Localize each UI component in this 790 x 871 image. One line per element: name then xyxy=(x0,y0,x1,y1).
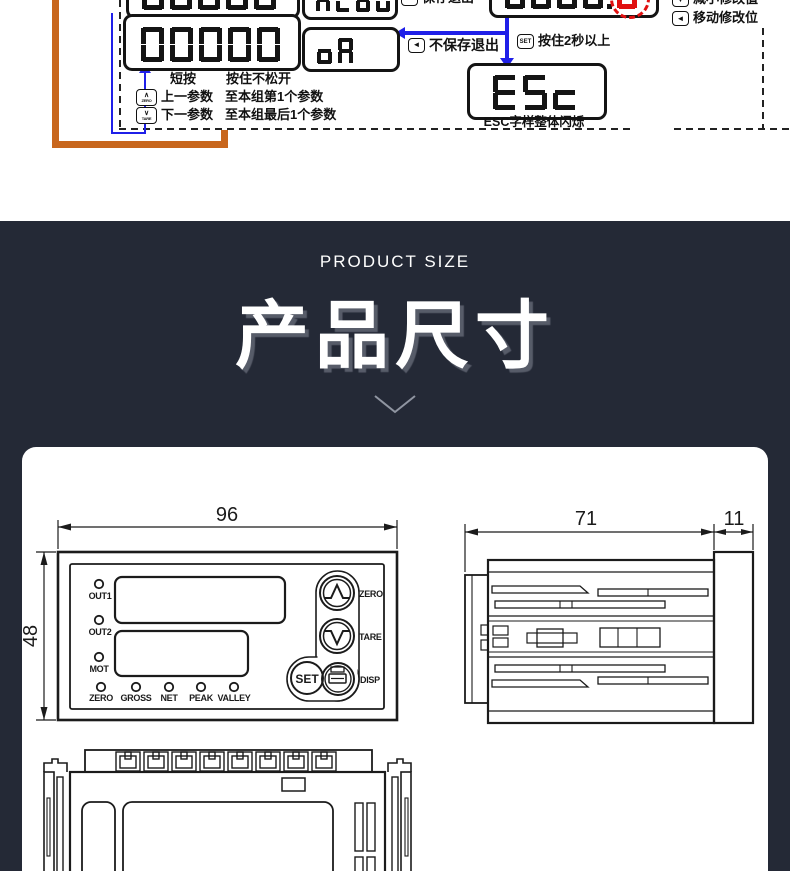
lcd-esc xyxy=(467,63,607,120)
lcd-main-value xyxy=(123,14,301,71)
led-mot-label: MOT xyxy=(89,664,109,674)
left-key-icon: ◄ xyxy=(408,38,425,53)
dimension-drawings: 96 48 OUT1 OUT2 MOT xyxy=(0,447,790,871)
dim-depth-label: 71 xyxy=(575,508,597,530)
dashed-border-left xyxy=(119,0,121,129)
led-out1-label: OUT1 xyxy=(89,591,112,601)
btn-set-label: SET xyxy=(295,672,319,686)
led-valley-label: VALLEY xyxy=(217,693,250,703)
blue-loop-left xyxy=(111,13,113,134)
btn-tare-label: TARE xyxy=(359,632,382,642)
param-digits xyxy=(314,38,356,64)
chevron-down-icon xyxy=(372,392,418,416)
prev-param-row: ∧ ZERO 上一参数 至本组第1个参数 xyxy=(136,89,323,106)
main-value-digits xyxy=(138,27,283,62)
btn-disp-label: DISP xyxy=(360,675,380,685)
esc-blink-label: ESC字样整体闪烁 xyxy=(467,115,601,129)
press-mode-header: 短按 按住不松开 xyxy=(170,72,291,87)
save-exit-label: SET 保存退出 xyxy=(401,0,474,6)
blue-loop-bottom xyxy=(111,132,146,134)
esc-digits xyxy=(490,75,580,110)
led-gross-label: GROSS xyxy=(120,693,151,703)
front-display-window-1 xyxy=(115,577,285,623)
banner-subtitle: PRODUCT SIZE xyxy=(0,252,790,272)
orange-connector-stub xyxy=(221,130,228,148)
set-key-icon: SET xyxy=(517,34,534,49)
front-view: 96 48 OUT1 OUT2 MOT xyxy=(20,504,397,720)
dashed-border-right xyxy=(762,28,764,129)
set-key-icon: SET xyxy=(401,0,418,6)
banner-title: 产品尺寸 xyxy=(0,276,790,383)
lcd-param xyxy=(302,27,400,72)
left-key-icon: ◄ xyxy=(672,11,689,26)
led-out2-label: OUT2 xyxy=(89,627,112,637)
dim-width-label: 96 xyxy=(216,504,238,526)
front-display-window-2 xyxy=(115,631,248,676)
led-peak-label: PEAK xyxy=(189,693,214,703)
side-view: 71 11 xyxy=(465,508,753,723)
dim-height-label: 48 xyxy=(20,625,42,647)
terminal-block xyxy=(116,752,336,771)
next-param-row: ∨ TARE 下一参数 至本组最后1个参数 xyxy=(136,107,336,124)
bottom-view xyxy=(44,750,411,871)
prev-value-digits xyxy=(139,0,279,10)
edit-value-digits xyxy=(502,0,613,9)
dashed-border-bottom-right xyxy=(674,128,790,130)
orange-connector-horizontal xyxy=(52,141,228,148)
lcd-prev-param xyxy=(302,0,398,20)
dim-bezel-label: 11 xyxy=(724,508,745,530)
no-save-exit-label: ◄ 不保存退出 xyxy=(408,37,499,53)
hold-2s-label: SET 按住2秒以上 xyxy=(517,34,610,49)
down-key-icon: ▼ xyxy=(672,0,689,7)
move-digit-label: ◄ 移动修改位 xyxy=(672,11,758,26)
page: SET 保存退出 ▼ 减小修改值 ◄ 移动修改位 ◄ 不保存退出 SET 按住2… xyxy=(0,0,790,871)
decrease-value-label: ▼ 减小修改值 xyxy=(672,0,758,7)
prev-param-digits xyxy=(313,0,393,12)
btn-zero-label: ZERO xyxy=(359,589,383,599)
blue-flow-left xyxy=(404,31,507,35)
led-zero-label: ZERO xyxy=(89,693,113,703)
tare-key-icon: ∨ TARE xyxy=(136,107,157,124)
led-net-label: NET xyxy=(160,693,178,703)
orange-connector-vertical xyxy=(52,0,59,148)
zero-key-icon: ∧ ZERO xyxy=(136,89,157,106)
